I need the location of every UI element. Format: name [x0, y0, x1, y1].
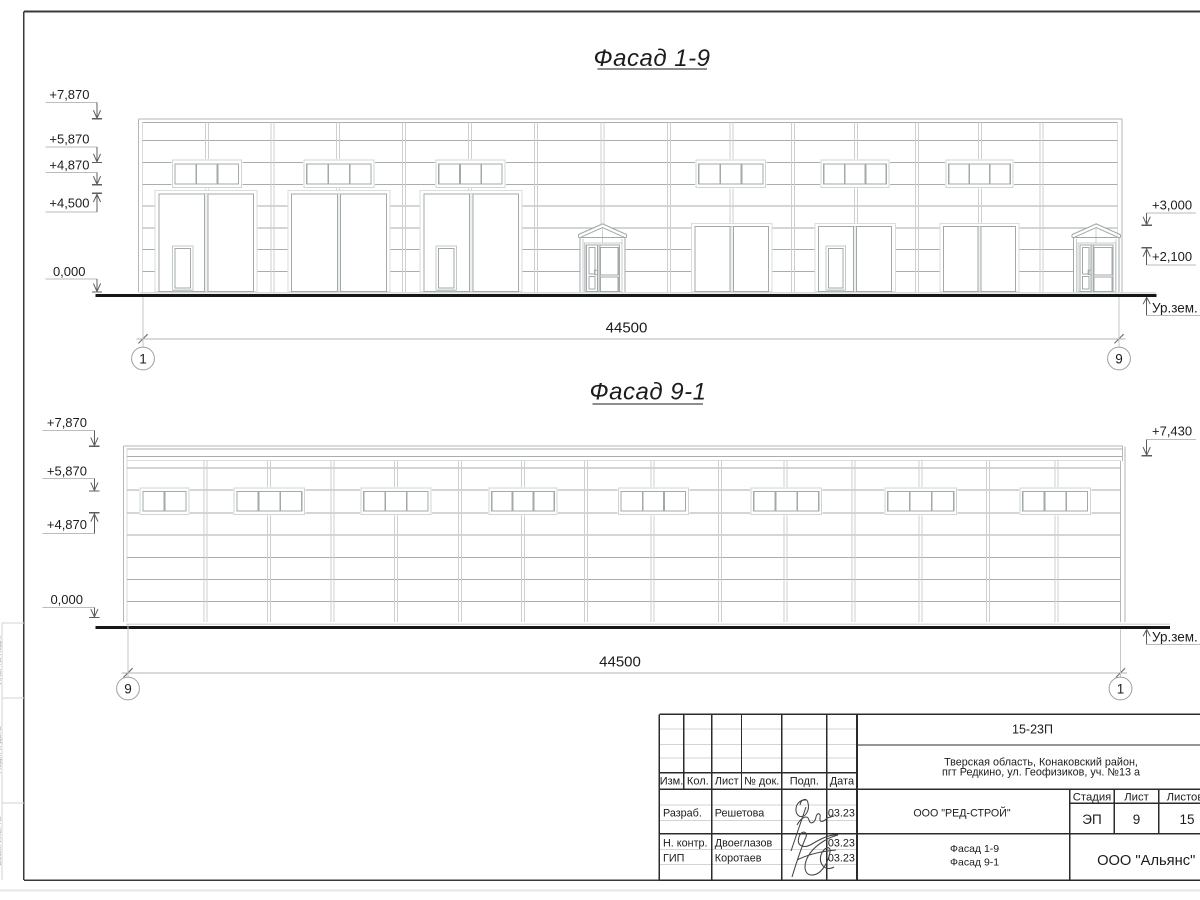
- svg-text:+7,870: +7,870: [47, 415, 87, 430]
- svg-text:Решетова: Решетова: [715, 808, 765, 820]
- svg-text:9: 9: [1133, 812, 1141, 827]
- svg-text:Фасад 9-1: Фасад 9-1: [590, 379, 707, 406]
- svg-text:+5,870: +5,870: [47, 463, 87, 478]
- svg-text:Дата: Дата: [830, 776, 855, 788]
- svg-text:+7,430: +7,430: [1152, 423, 1192, 438]
- svg-text:Н. контр.: Н. контр.: [663, 837, 708, 849]
- svg-text:+4,870: +4,870: [47, 517, 87, 532]
- svg-text:+4,870: +4,870: [49, 158, 89, 173]
- svg-text:1: 1: [139, 351, 147, 366]
- svg-text:0,000: 0,000: [53, 264, 86, 279]
- svg-text:Ур.зем.: Ур.зем.: [1152, 630, 1198, 645]
- svg-text:03.23: 03.23: [828, 808, 855, 820]
- svg-text:Подп. и дата: Подп. и дата: [0, 726, 3, 774]
- svg-text:Ур.зем.: Ур.зем.: [1152, 301, 1198, 316]
- svg-text:Стадия: Стадия: [1073, 791, 1112, 803]
- svg-text:Лист: Лист: [715, 776, 739, 788]
- svg-text:44500: 44500: [599, 653, 641, 670]
- svg-text:03.23: 03.23: [828, 837, 855, 849]
- svg-text:9: 9: [124, 681, 132, 696]
- svg-text:Фасад 1-9: Фасад 1-9: [950, 843, 999, 855]
- svg-text:+3,000: +3,000: [1152, 198, 1192, 213]
- svg-text:+7,870: +7,870: [49, 87, 89, 102]
- svg-text:0,000: 0,000: [50, 592, 83, 607]
- svg-text:Инв. № подл.: Инв. № подл.: [0, 635, 3, 685]
- svg-text:Фасад 1-9: Фасад 1-9: [594, 45, 711, 72]
- svg-text:Разраб.: Разраб.: [663, 808, 702, 820]
- svg-text:ЭП: ЭП: [1082, 812, 1101, 827]
- svg-text:1: 1: [1117, 681, 1125, 696]
- svg-text:Изм.: Изм.: [660, 776, 684, 788]
- svg-text:Кол.: Кол.: [687, 776, 709, 788]
- svg-text:+2,100: +2,100: [1152, 249, 1192, 264]
- svg-text:03.23: 03.23: [828, 852, 855, 864]
- svg-text:15-23П: 15-23П: [1012, 723, 1053, 737]
- svg-text:Фасад 9-1: Фасад 9-1: [950, 856, 999, 868]
- svg-text:Коротаев: Коротаев: [715, 852, 762, 864]
- svg-text:№ док.: № док.: [744, 776, 779, 788]
- svg-text:44500: 44500: [606, 320, 648, 337]
- svg-text:пгт Редкино, ул. Геофизиков, у: пгт Редкино, ул. Геофизиков, уч. №13 а: [942, 767, 1140, 779]
- svg-text:Двоеглазов: Двоеглазов: [715, 837, 773, 849]
- svg-text:Взам. инв. №: Взам. инв. №: [0, 816, 3, 866]
- svg-text:15: 15: [1179, 812, 1194, 827]
- svg-text:Листов: Листов: [1167, 791, 1200, 803]
- svg-text:ООО "РЕД-СТРОЙ": ООО "РЕД-СТРОЙ": [913, 806, 1011, 819]
- svg-text:Подп.: Подп.: [790, 776, 819, 788]
- svg-text:+4,500: +4,500: [49, 196, 89, 211]
- svg-text:+5,870: +5,870: [49, 132, 89, 147]
- svg-text:ООО "Альянс": ООО "Альянс": [1097, 853, 1195, 869]
- svg-text:9: 9: [1115, 351, 1123, 366]
- svg-text:Лист: Лист: [1124, 791, 1149, 803]
- svg-text:ГИП: ГИП: [663, 852, 684, 864]
